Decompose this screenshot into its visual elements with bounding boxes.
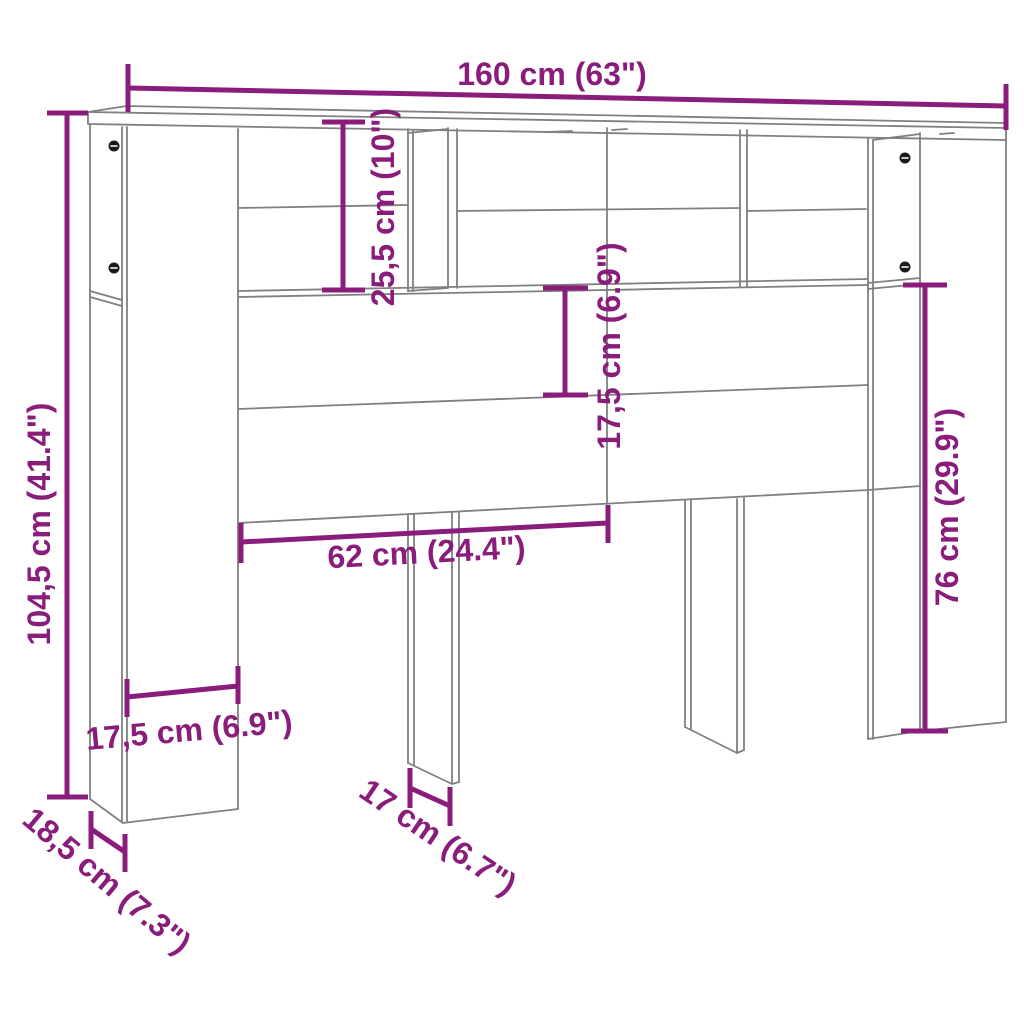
screws: [109, 141, 911, 274]
backboard: [238, 128, 920, 523]
dim-label-side-panel-height: 76 cm (29.9"): [929, 408, 965, 606]
dim-label-upper-panel-height: 17,5 cm (6.9"): [591, 242, 627, 449]
dim-label-total-width: 160 cm (63"): [457, 56, 647, 92]
dimension-diagram-page: 160 cm (63") 104,5 cm (41.4") 25,5 cm (1…: [0, 0, 1024, 1024]
dim-label-column-width: 17,5 cm (6.9"): [84, 703, 294, 757]
dimension-labels: 160 cm (63") 104,5 cm (41.4") 25,5 cm (1…: [16, 56, 965, 961]
top-board: [88, 106, 1006, 140]
dim-label-leg-width: 17 cm (6.7"): [353, 771, 523, 902]
headboard-dimension-diagram: 160 cm (63") 104,5 cm (41.4") 25,5 cm (1…: [0, 0, 1024, 1024]
dimension-lines: [47, 64, 1006, 872]
top-shelf: [238, 128, 868, 297]
dim-label-top-shelf-height: 25,5 cm (10"): [365, 108, 401, 306]
dim-label-total-height: 104,5 cm (41.4"): [21, 403, 57, 646]
dim-line-upper-panel-height: [543, 288, 588, 395]
dim-label-depth: 18,5 cm (7.3"): [16, 800, 198, 961]
